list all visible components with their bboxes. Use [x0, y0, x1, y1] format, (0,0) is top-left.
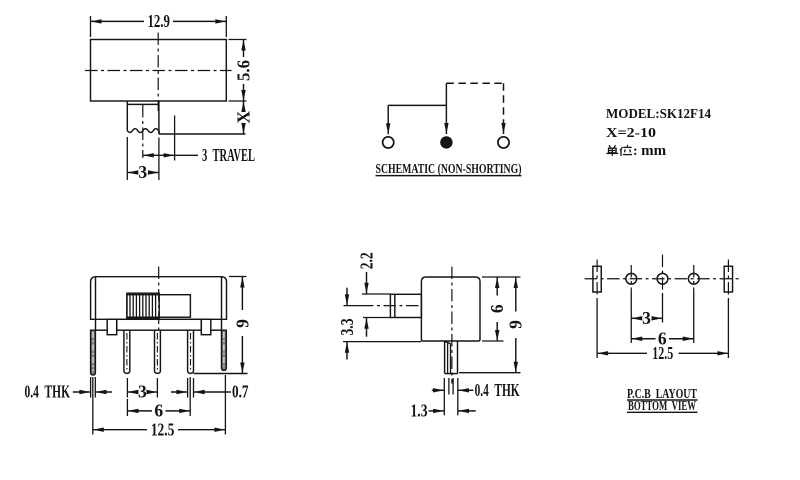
svg-text:2.2: 2.2 [356, 252, 376, 269]
svg-text:3: 3 [138, 382, 147, 402]
svg-text:BOTTOM VIEW: BOTTOM VIEW [628, 398, 696, 413]
svg-text:5.6: 5.6 [233, 60, 253, 81]
svg-text:0.4 THK: 0.4 THK [25, 382, 71, 402]
svg-text:3 TRAVEL: 3 TRAVEL [202, 145, 255, 165]
svg-text:12.5: 12.5 [151, 419, 175, 439]
svg-text:9: 9 [506, 320, 526, 329]
svg-text:: mm: : mm [633, 143, 667, 159]
svg-text:3: 3 [642, 308, 651, 328]
svg-text:SCHEMATIC (NON-SHORTING): SCHEMATIC (NON-SHORTING) [376, 161, 522, 176]
svg-text:0.4 THK: 0.4 THK [475, 380, 520, 400]
svg-text:MODEL:SK12F14: MODEL:SK12F14 [606, 107, 711, 122]
svg-text:X=2-10: X=2-10 [606, 126, 656, 141]
svg-text:1.3: 1.3 [411, 401, 428, 421]
svg-text:6: 6 [487, 304, 507, 313]
svg-text:6: 6 [154, 401, 163, 421]
svg-text:3.3: 3.3 [337, 318, 357, 335]
svg-text:X: X [233, 111, 253, 124]
svg-text:0.7: 0.7 [232, 382, 249, 402]
svg-text:12.9: 12.9 [147, 11, 170, 31]
svg-text:3: 3 [138, 162, 147, 182]
svg-text:9: 9 [232, 319, 252, 328]
svg-text:12.5: 12.5 [652, 343, 673, 363]
